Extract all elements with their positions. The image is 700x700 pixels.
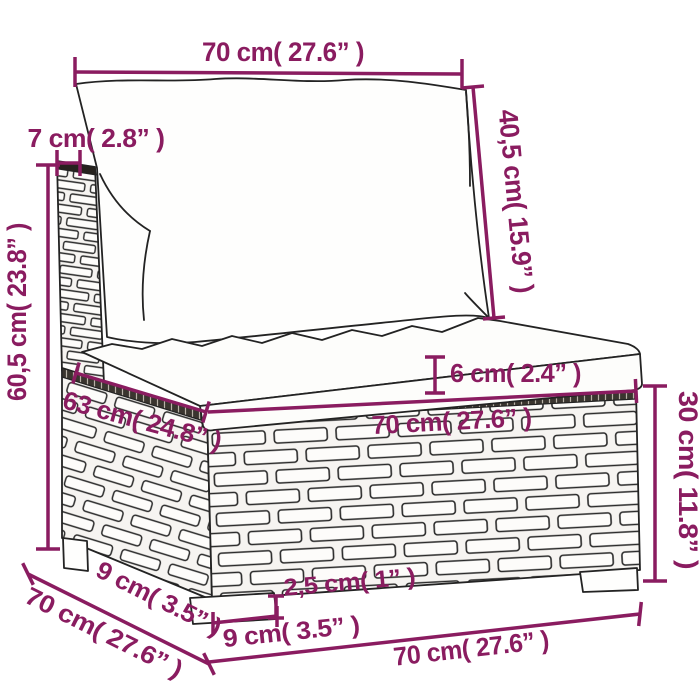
dim-back-cushion-height-label: 40,5 cm( 15.9” ) [493,108,540,294]
dim-base-height [643,386,667,581]
dim-total-height-label: 60,5 cm( 23.8” ) [2,223,32,401]
foot-left [63,538,88,571]
dim-base-height-label: 30 cm( 11.8” ) [673,391,700,569]
dim-back-thickness-label: 7 cm( 2.8” ) [28,123,165,153]
foot-right [580,568,638,592]
sofa-dimension-figure: 70 cm( 27.6” ) 7 cm( 2.8” ) 60,5 cm( 23.… [0,0,700,700]
back-cushion [76,78,489,343]
dim-total-height [36,165,60,549]
dim-cushion-thickness-label: 6 cm( 2.4” ) [450,358,581,388]
dim-top-width-label: 70 cm( 27.6” ) [202,37,364,67]
product-diagram-canvas: 70 cm( 27.6” ) 7 cm( 2.8” ) 60,5 cm( 23.… [0,0,700,700]
